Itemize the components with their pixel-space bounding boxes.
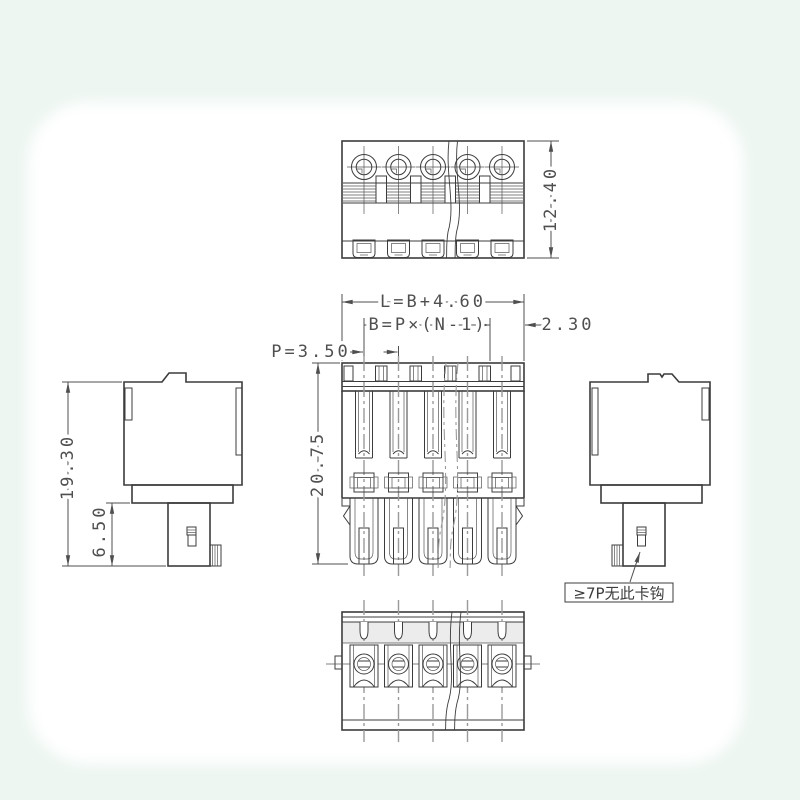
dim-text-length-formula: L=B+4.60 (380, 292, 486, 312)
dim-text-span-formula: B=P×(N-1) (368, 315, 487, 335)
dim-text-20-75: 20.75 (308, 431, 328, 497)
note-text: ≥7P无此卡钩 (573, 585, 664, 603)
dim-text-end-offset: 2.30 (542, 315, 595, 335)
dim-text-pitch: P=3.50 (271, 342, 350, 362)
dim-text-19-30: 19.30 (58, 434, 78, 500)
dim-text-6-50: 6.50 (90, 505, 110, 558)
dim-pole-span: B=P×(N-1) (364, 315, 490, 335)
technical-drawing-canvas: 12.40 L=B+4.60 B=P×(N-1) 2.30 P=3.50 (0, 0, 800, 800)
dim-text-12-40: 12.40 (541, 166, 561, 232)
